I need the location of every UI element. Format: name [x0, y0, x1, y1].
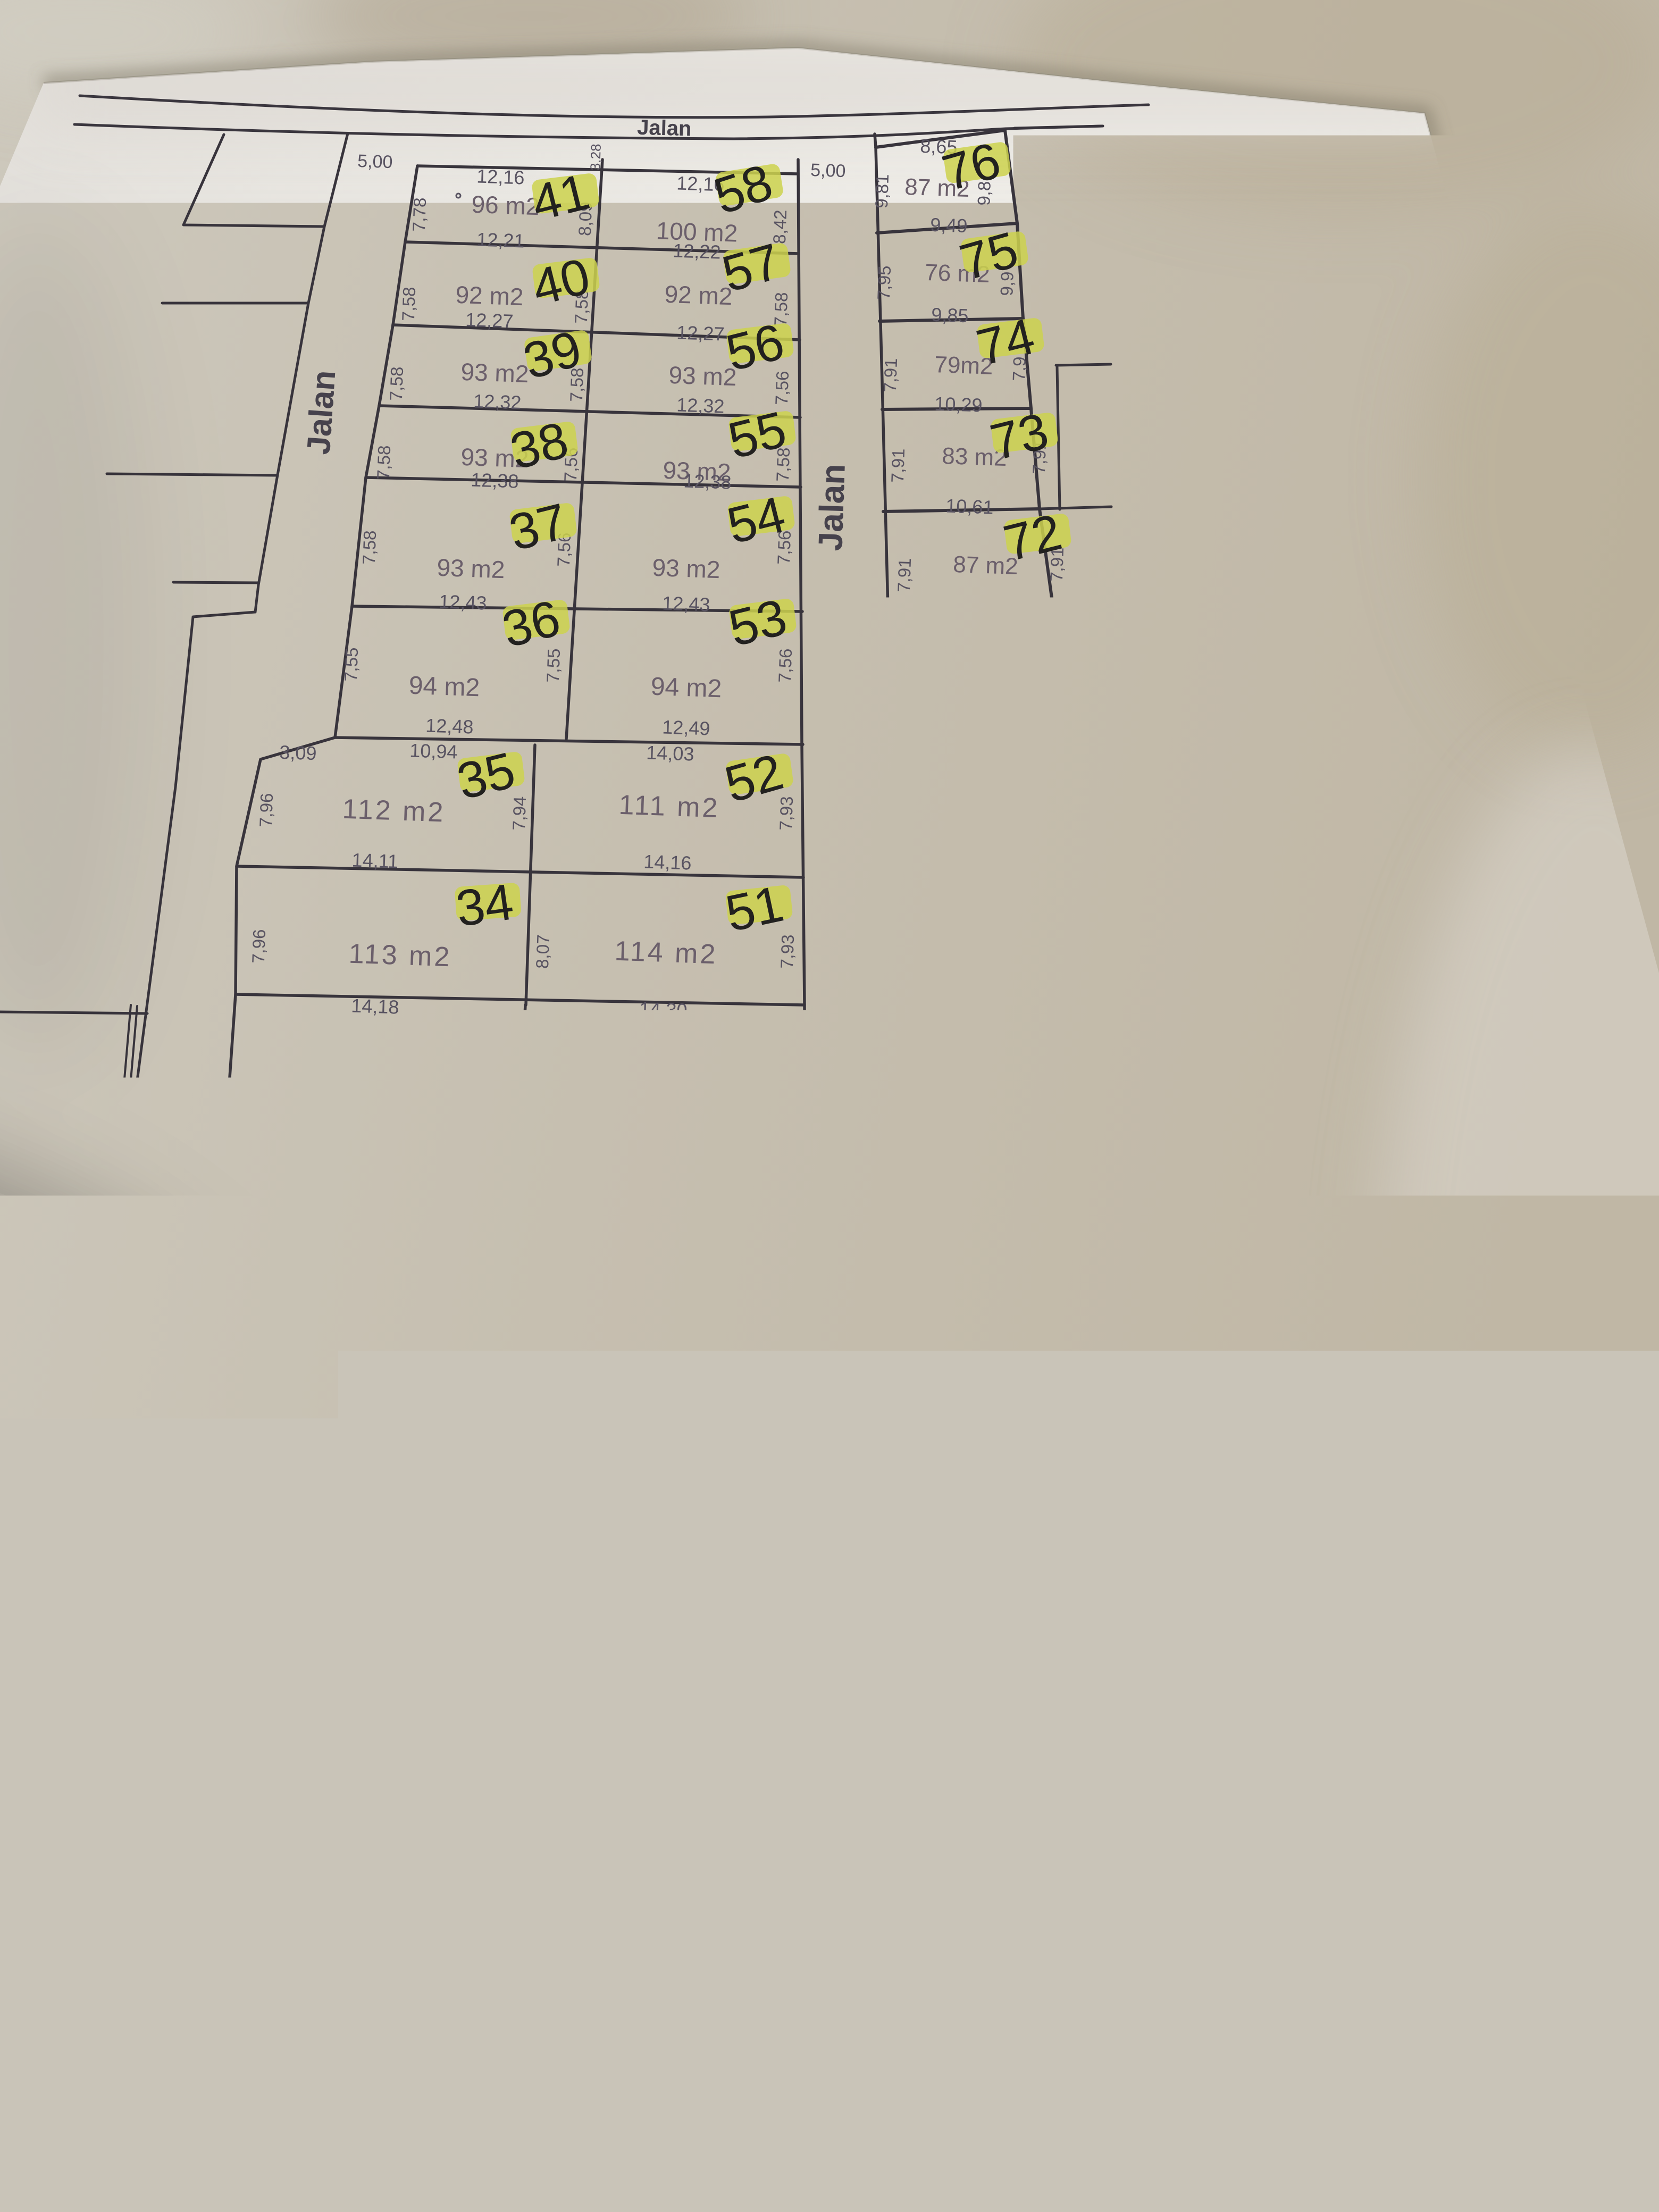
svg-text:7,55: 7,55 [543, 648, 564, 683]
svg-text:7,91: 7,91 [887, 448, 908, 483]
svg-text:96 m2: 96 m2 [471, 190, 540, 220]
svg-text:7,91: 7,91 [1076, 793, 1097, 827]
svg-text:7,91: 7,91 [899, 665, 920, 700]
svg-text:94 m2: 94 m2 [650, 673, 722, 703]
svg-text:7,91: 7,91 [880, 358, 901, 392]
svg-text:12,32: 12,32 [473, 390, 522, 413]
svg-text:33: 33 [432, 1020, 517, 1105]
svg-text:3,28: 3,28 [587, 144, 604, 171]
svg-text:90 m2: 90 m2 [961, 670, 1027, 698]
svg-text:Sdh Bangun: Sdh Bangun [596, 1084, 728, 1113]
svg-text:5,00: 5,00 [810, 160, 846, 181]
svg-text:14,30: 14,30 [639, 998, 688, 1021]
svg-text:7,91: 7,91 [894, 558, 915, 592]
svg-text:112 m2: 112 m2 [342, 794, 446, 828]
svg-text:5,00: 5,00 [357, 151, 393, 172]
svg-text:10,61: 10,61 [945, 495, 994, 518]
svg-text:92 m2: 92 m2 [455, 281, 524, 311]
svg-text:14,16: 14,16 [643, 850, 692, 874]
svg-text:Jalan: Jalan [828, 1426, 871, 1515]
svg-text:10,29: 10,29 [934, 392, 983, 416]
svg-text:93 m2: 93 m2 [460, 358, 530, 388]
svg-text:7,58: 7,58 [373, 445, 394, 480]
svg-text:Jalan: Jalan [300, 369, 343, 456]
svg-text:113 m2: 113 m2 [348, 939, 452, 973]
svg-text:7,58: 7,58 [386, 366, 407, 401]
svg-text:12,27: 12,27 [465, 308, 514, 332]
svg-text:114 m2: 114 m2 [614, 936, 718, 970]
svg-text:7,93: 7,93 [776, 796, 797, 831]
svg-text:7,56: 7,56 [775, 648, 795, 683]
svg-text:14,18: 14,18 [351, 994, 399, 1018]
svg-text:7,91: 7,91 [905, 935, 926, 970]
svg-text:Jalan: Jalan [811, 463, 852, 551]
svg-text:94 m2: 94 m2 [408, 672, 480, 702]
svg-text:12,21: 12,21 [476, 228, 525, 252]
svg-text:9,81: 9,81 [872, 174, 892, 208]
svg-text:8,08: 8,08 [227, 1085, 248, 1120]
svg-text:7,91: 7,91 [1091, 929, 1111, 963]
svg-text:48: 48 [711, 1301, 798, 1388]
svg-text:50: 50 [729, 1019, 812, 1102]
svg-text:12,16: 12,16 [476, 165, 525, 188]
svg-text:93 m2: 93 m2 [652, 554, 721, 583]
svg-text:10,94: 10,94 [409, 739, 458, 763]
svg-text:11,48: 11,48 [974, 720, 1021, 743]
svg-text:11,86: 11,86 [990, 990, 1037, 1013]
svg-text:Sdh Bangun: Sdh Bangun [964, 1224, 1096, 1253]
svg-text:93 m2: 93 m2 [969, 933, 1035, 961]
svg-text:12,27: 12,27 [676, 321, 725, 345]
svg-text:92 m2: 92 m2 [664, 280, 733, 310]
svg-text:7,96: 7,96 [248, 929, 269, 963]
svg-text:7,78: 7,78 [409, 197, 430, 232]
svg-text:9,85: 9,85 [931, 304, 969, 326]
svg-text:7,95: 7,95 [874, 265, 894, 300]
svg-text:12,48: 12,48 [425, 714, 474, 738]
svg-text:7,94: 7,94 [509, 796, 530, 831]
svg-text:51: 51 [721, 875, 789, 943]
svg-text:11,29: 11,29 [958, 595, 1006, 618]
svg-text:8,07: 8,07 [532, 934, 553, 969]
svg-text:9,49: 9,49 [930, 214, 968, 237]
svg-text:7,58: 7,58 [398, 287, 419, 321]
svg-text:7,55: 7,55 [341, 647, 362, 682]
svg-text:91 m2: 91 m2 [966, 790, 1032, 818]
svg-text:14,11: 14,11 [351, 849, 399, 872]
svg-text:8,15: 8,15 [776, 1084, 797, 1119]
svg-text:12,32: 12,32 [676, 393, 725, 417]
svg-text:12,38: 12,38 [683, 470, 732, 493]
svg-text:7,93: 7,93 [777, 934, 798, 969]
svg-text:7,59: 7,59 [1104, 1068, 1125, 1103]
svg-text:12,43: 12,43 [439, 590, 487, 614]
svg-text:Jalan: Jalan [466, 1887, 542, 1921]
svg-text:7,58: 7,58 [359, 530, 380, 565]
svg-text:3,09: 3,09 [279, 741, 317, 764]
svg-text:12,38: 12,38 [471, 468, 519, 492]
svg-text:Sdh Bangun: Sdh Bangun [601, 1230, 734, 1260]
svg-text:12,22: 12,22 [673, 239, 721, 263]
svg-text:7,56: 7,56 [772, 371, 792, 405]
svg-text:34: 34 [453, 873, 517, 937]
svg-text:93 m2: 93 m2 [668, 361, 738, 391]
svg-text:Jalan: Jalan [637, 116, 692, 141]
svg-text:111 m2: 111 m2 [618, 790, 720, 824]
svg-text:7,91: 7,91 [902, 797, 923, 832]
svg-text:7,96: 7,96 [522, 1085, 542, 1120]
svg-text:12,43: 12,43 [662, 592, 710, 615]
svg-text:11,67: 11,67 [980, 848, 1027, 872]
svg-text:7,59: 7,59 [908, 1074, 928, 1108]
svg-text:12,49: 12,49 [662, 716, 710, 739]
svg-text:7,96: 7,96 [256, 793, 276, 827]
svg-text:93 m2: 93 m2 [437, 554, 506, 583]
svg-text:14,03: 14,03 [646, 741, 694, 765]
